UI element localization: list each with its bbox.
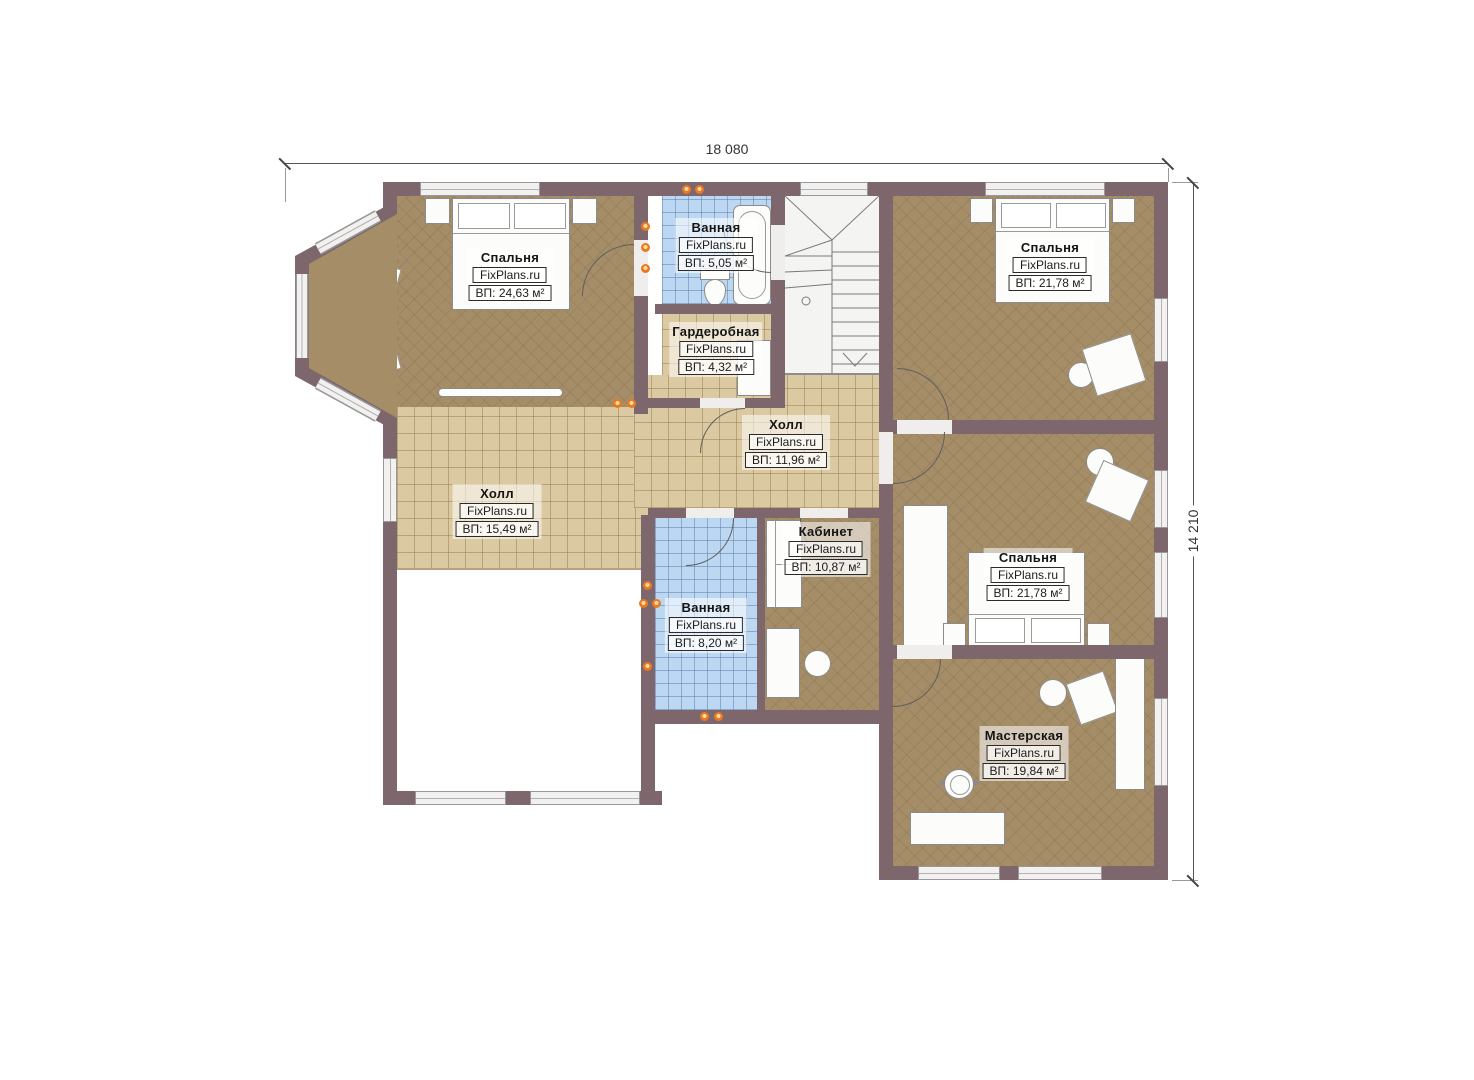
socket-dot [643,662,652,671]
window [420,182,540,196]
window [800,182,868,196]
socket-dot [627,399,636,408]
work-table [910,812,1005,845]
watermark: FixPlans.ru [987,745,1061,761]
room-area: ВП: 8,20 м² [668,635,744,651]
socket-dot [641,243,650,252]
dimension-height-label: 14 210 [1185,506,1201,557]
socket-dot [641,222,650,231]
door-opening [879,432,893,484]
socket-dot [682,185,691,194]
room-label-bathroom-top: Ванная FixPlans.ru ВП: 5,05 м² [675,218,757,273]
socket-dot [639,599,648,608]
shelf [438,388,563,397]
round-table [1039,679,1067,707]
watermark: FixPlans.ru [679,237,753,253]
extension-line [1168,168,1169,182]
watermark: FixPlans.ru [679,341,753,357]
door-opening [897,645,952,659]
room-name: Ванная [692,220,741,235]
watermark: FixPlans.ru [749,434,823,450]
work-table [1115,655,1145,790]
room-name: Холл [480,486,514,501]
door-opening [700,398,745,408]
wall-center-vertical [879,196,893,866]
watermark: FixPlans.ru [1013,257,1087,273]
watermark: FixPlans.ru [460,503,534,519]
room-name: Кабинет [799,524,854,539]
socket-dot [652,599,661,608]
room-label-bedroom-top-right: Спальня FixPlans.ru ВП: 21,78 м² [1006,238,1095,293]
wall-bath-office [757,518,765,710]
room-area: ВП: 21,78 м² [987,585,1070,601]
nightstand [970,198,993,223]
watermark: FixPlans.ru [789,541,863,557]
pot [944,769,974,799]
room-area: ВП: 15,49 м² [456,521,539,537]
room-area: ВП: 21,78 м² [1009,275,1092,291]
stairs-edge [785,373,879,375]
nightstand [1112,198,1135,223]
room-label-hall-left: Холл FixPlans.ru ВП: 15,49 м² [453,484,542,539]
room-name: Гардеробная [672,324,759,339]
watermark: FixPlans.ru [991,567,1065,583]
room-label-bathroom-middle: Ванная FixPlans.ru ВП: 8,20 м² [665,598,747,653]
room-label-bedroom-top-left: Спальня FixPlans.ru ВП: 24,63 м² [466,248,555,303]
socket-dot [700,712,709,721]
wall-mid-bottom [648,710,893,724]
room-area: ВП: 11,96 м² [745,452,827,468]
door-opening [686,508,734,518]
window [1154,298,1168,362]
door-opening [800,508,848,518]
window [1154,698,1168,786]
socket-dot [714,712,723,721]
desk [766,628,800,698]
room-label-office: Кабинет FixPlans.ru ВП: 10,87 м² [782,522,871,577]
hall-edge [397,568,641,570]
watermark: FixPlans.ru [669,617,743,633]
bay-window [283,196,399,436]
window [1154,552,1168,618]
wall-bath-wardrobe [655,304,771,314]
room-name: Спальня [481,250,539,265]
window [1154,470,1168,528]
room-label-workshop: Мастерская FixPlans.ru ВП: 19,84 м² [980,726,1069,781]
room-area: ВП: 19,84 м² [983,763,1066,779]
watermark: FixPlans.ru [473,267,547,283]
room-label-hall-center: Холл FixPlans.ru ВП: 11,96 м² [742,415,830,470]
window [918,866,1000,880]
socket-dot [695,185,704,194]
room-area: ВП: 4,32 м² [678,359,754,375]
socket-dot [613,399,622,408]
office-chair [804,650,831,677]
nightstand [572,198,597,224]
room-name: Ванная [682,600,731,615]
floor-empty-room [397,570,641,791]
window [985,182,1105,196]
dimension-width-label: 18 080 [702,141,753,157]
wardrobe-cabinet [903,505,948,648]
room-label-wardrobe: Гардеробная FixPlans.ru ВП: 4,32 м² [669,322,762,377]
window [383,458,397,522]
room-name: Мастерская [985,728,1064,743]
room-area: ВП: 5,05 м² [678,255,754,271]
room-name: Спальня [999,550,1057,565]
window [415,791,506,805]
wall-mid-top [648,508,893,518]
room-name: Спальня [1021,240,1079,255]
extension-line [285,168,286,202]
room-name: Холл [769,417,803,432]
window [1018,866,1102,880]
nightstand [425,198,450,224]
room-area: ВП: 10,87 м² [785,559,868,575]
wall-whiteroom-right [641,515,655,791]
door-opening [771,225,785,280]
room-area: ВП: 24,63 м² [469,285,552,301]
floor-plan-canvas: Спальня FixPlans.ru ВП: 24,63 м² Ванная … [0,0,1474,1080]
socket-dot [641,264,650,273]
stairs [785,196,879,375]
dimension-line-top [285,163,1168,164]
socket-dot [643,581,652,590]
window [530,791,640,805]
room-label-bedroom-mid-right: Спальня FixPlans.ru ВП: 21,78 м² [984,548,1073,603]
